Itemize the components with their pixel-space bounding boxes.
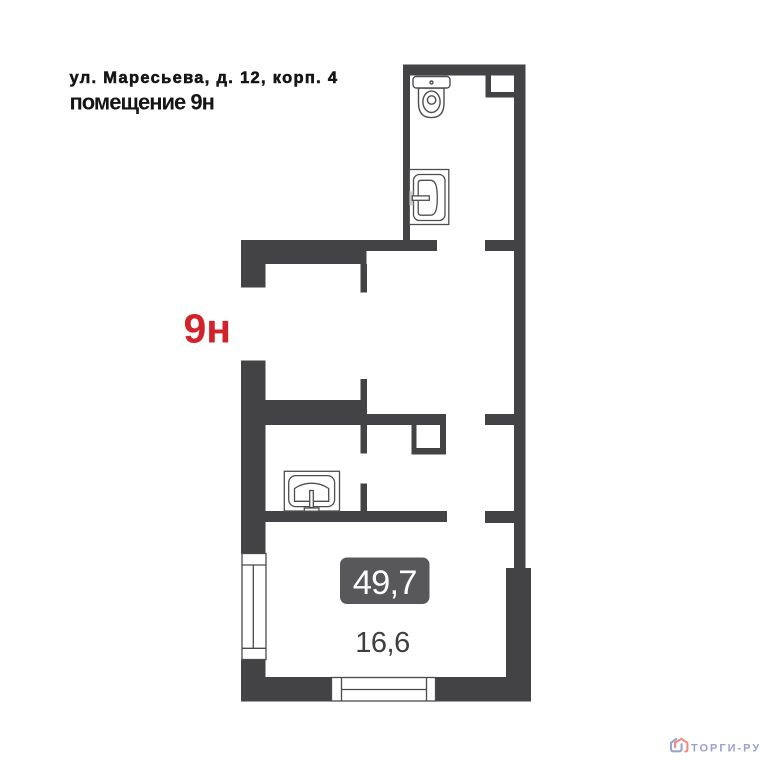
svg-text:помещение 9н: помещение 9н [70,90,214,115]
svg-text:49,7: 49,7 [353,564,417,602]
svg-text:9н: 9н [184,306,232,352]
svg-text:16,6: 16,6 [355,627,409,659]
svg-text:ТОРГИ-РУ: ТОРГИ-РУ [691,742,761,754]
svg-text:ул. Маресьева, д. 12, корп. 4: ул. Маресьева, д. 12, корп. 4 [70,69,339,87]
